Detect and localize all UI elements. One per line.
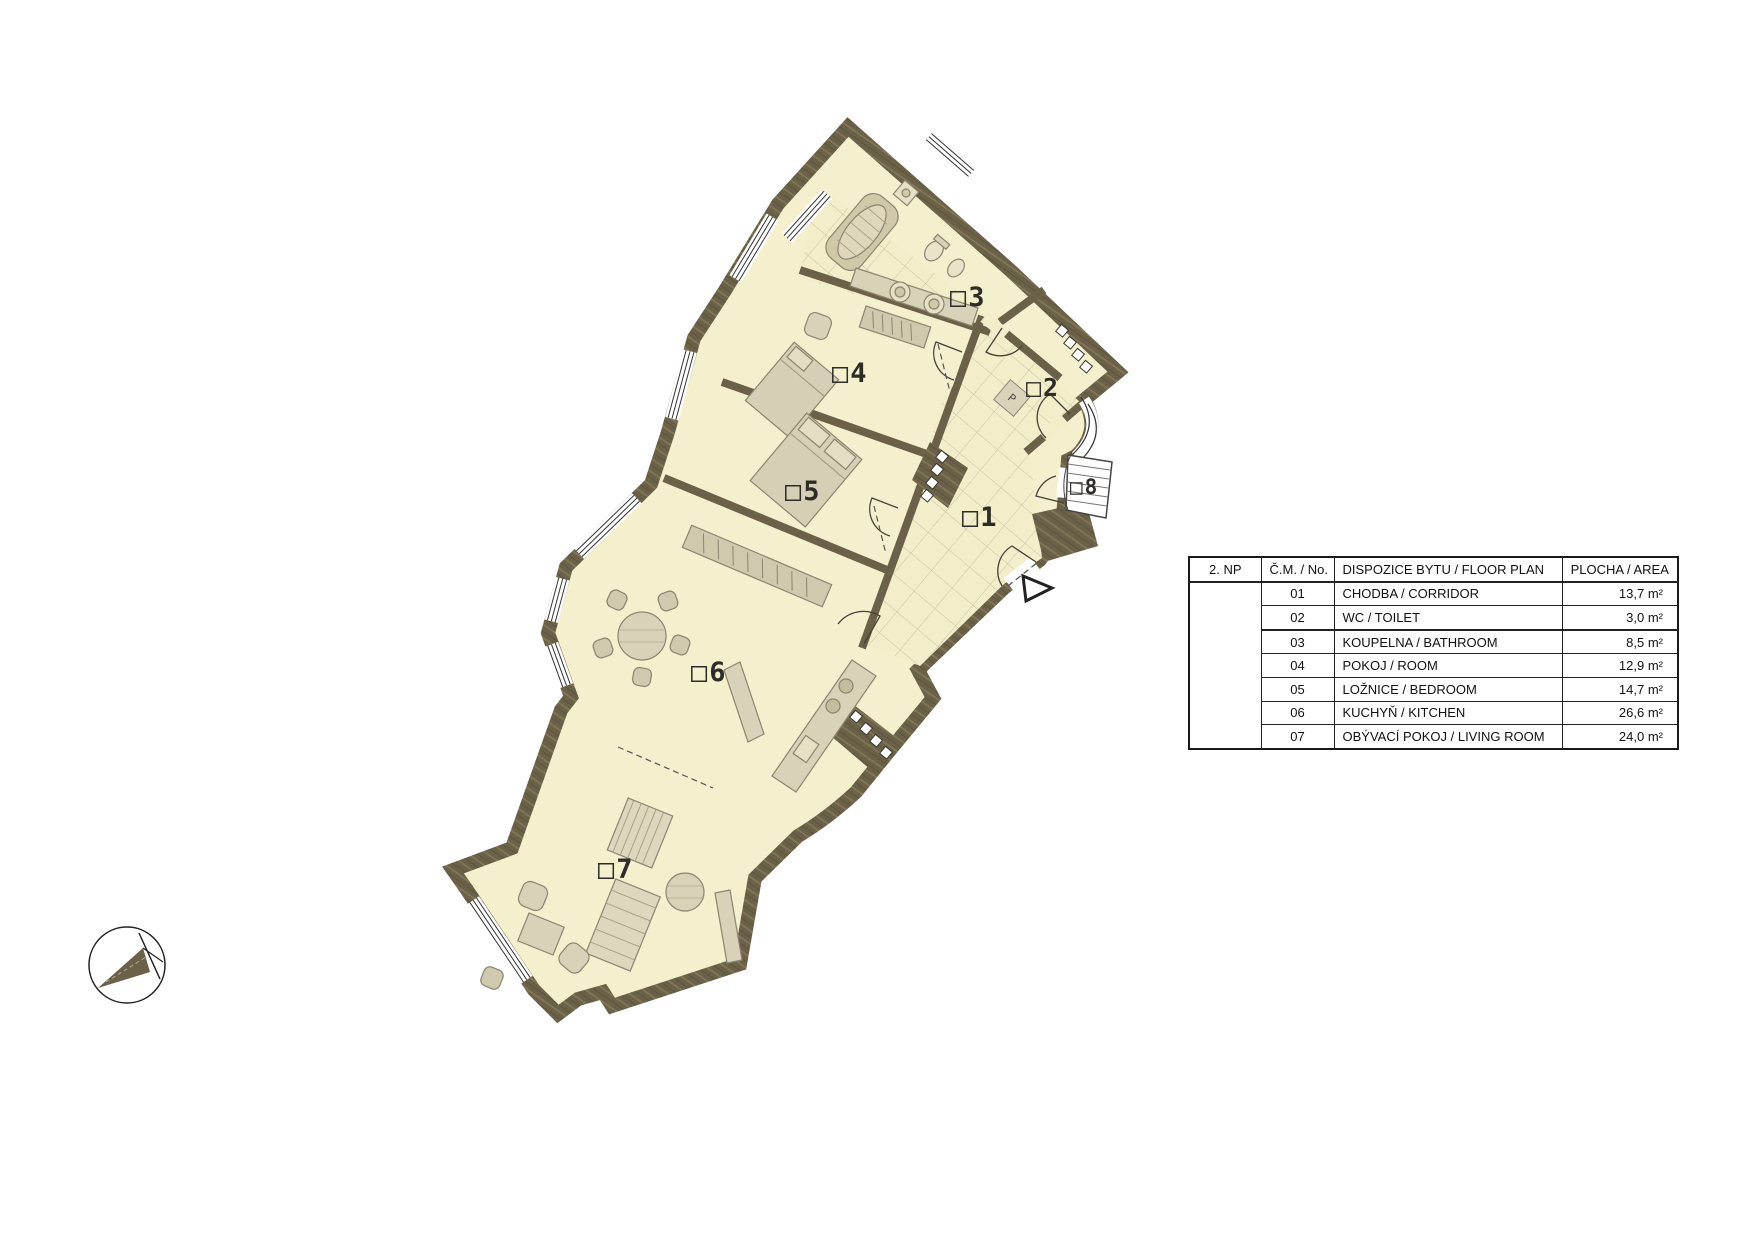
legend-header-row: 2. NP Č.M. / No. DISPOZICE BYTU / FLOOR …: [1189, 557, 1678, 582]
room-area: 24,0 m²: [1562, 725, 1678, 749]
compass-icon: [89, 927, 165, 1003]
room-name: OBÝVACÍ POKOJ / LIVING ROOM: [1334, 725, 1562, 749]
room-label-03: □3: [950, 282, 987, 313]
room-no: 02: [1261, 606, 1334, 630]
room-no: 06: [1261, 701, 1334, 725]
room-no: 05: [1261, 677, 1334, 701]
entrance-arrow-icon: [1023, 576, 1052, 601]
legend-row: 01 CHODBA / CORRIDOR 13,7 m²: [1189, 582, 1678, 606]
room-label-08: □8: [1070, 475, 1099, 499]
floor-spacer-cell: [1189, 582, 1261, 749]
legend-row: 02 WC / TOILET 3,0 m²: [1189, 606, 1678, 630]
window-bath-icon: [924, 131, 975, 178]
legend-row: 07 OBÝVACÍ POKOJ / LIVING ROOM 24,0 m²: [1189, 725, 1678, 749]
room-label-02: □2: [1026, 373, 1060, 402]
legend-row: 06 KUCHYŇ / KITCHEN 26,6 m²: [1189, 701, 1678, 725]
room-area: 26,6 m²: [1562, 701, 1678, 725]
legend-table: 2. NP Č.M. / No. DISPOZICE BYTU / FLOOR …: [1188, 556, 1679, 750]
room-area: 8,5 m²: [1562, 630, 1678, 654]
room-no: 01: [1261, 582, 1334, 606]
room-area: 14,7 m²: [1562, 677, 1678, 701]
plant-icon: [479, 965, 505, 991]
room-name: KUCHYŇ / KITCHEN: [1334, 701, 1562, 725]
room-name: KOUPELNA / BATHROOM: [1334, 630, 1562, 654]
rug-icon: [666, 873, 704, 911]
legend-row: 05 LOŽNICE / BEDROOM 14,7 m²: [1189, 677, 1678, 701]
room-label-06: □6: [691, 657, 728, 688]
room-no: 04: [1261, 654, 1334, 678]
col-header-area: PLOCHA / AREA: [1562, 557, 1678, 582]
room-no: 03: [1261, 630, 1334, 654]
legend-row: 04 POKOJ / ROOM 12,9 m²: [1189, 654, 1678, 678]
room-area: 12,9 m²: [1562, 654, 1678, 678]
room-label-07: □7: [598, 854, 635, 885]
room-name: WC / TOILET: [1334, 606, 1562, 630]
floor-plan-canvas: P □1 □2 □3 □4 □5 □6 □7 □8 2. NP Č.M. / N…: [0, 0, 1754, 1239]
room-area: 13,7 m²: [1562, 582, 1678, 606]
room-name: CHODBA / CORRIDOR: [1334, 582, 1562, 606]
room-label-04: □4: [832, 358, 869, 389]
col-header-name: DISPOZICE BYTU / FLOOR PLAN: [1334, 557, 1562, 582]
room-name: POKOJ / ROOM: [1334, 654, 1562, 678]
floor-title: 2. NP: [1189, 557, 1261, 582]
dining-table-icon: [618, 612, 666, 660]
room-label-05: □5: [785, 476, 822, 507]
room-name: LOŽNICE / BEDROOM: [1334, 677, 1562, 701]
room-area: 3,0 m²: [1562, 606, 1678, 630]
room-label-01: □1: [962, 502, 999, 533]
room-no: 07: [1261, 725, 1334, 749]
col-header-no: Č.M. / No.: [1261, 557, 1334, 582]
legend-row: 03 KOUPELNA / BATHROOM 8,5 m²: [1189, 630, 1678, 654]
